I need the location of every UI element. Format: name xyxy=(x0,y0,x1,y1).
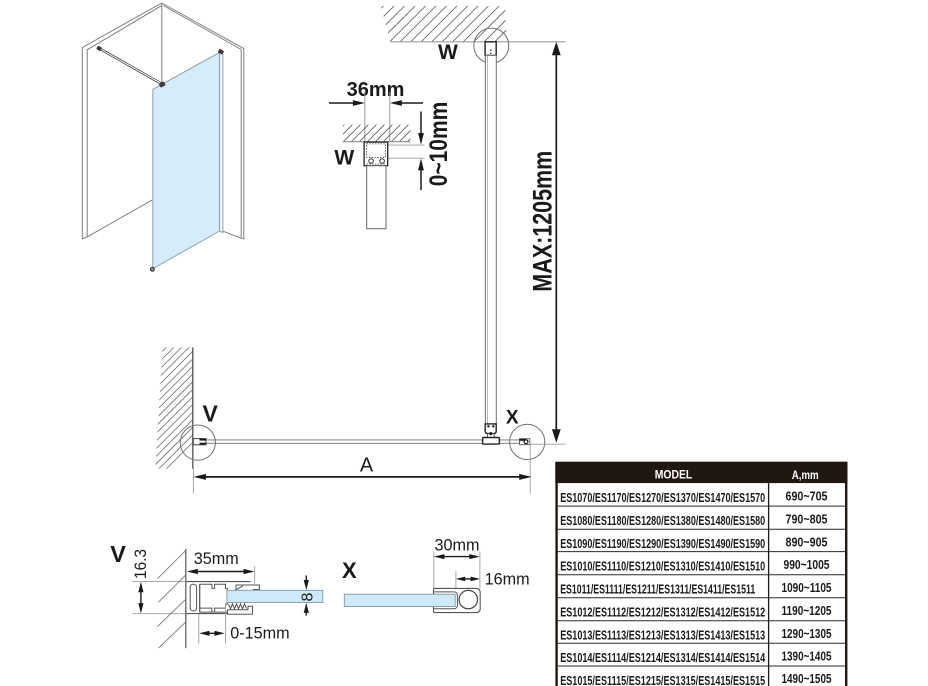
svg-text:W: W xyxy=(334,147,354,170)
svg-text:ES1015/ES1115/ES1215/ES1315/ES: ES1015/ES1115/ES1215/ES1315/ES1415/ES151… xyxy=(560,673,765,686)
svg-text:V: V xyxy=(203,401,219,427)
svg-text:ES1013/ES1113/ES1213/ES1313/ES: ES1013/ES1113/ES1213/ES1313/ES1413/ES151… xyxy=(560,628,765,643)
svg-text:690~705: 690~705 xyxy=(786,488,828,503)
svg-text:ES1090/ES1190/ES1290/ES1390/ES: ES1090/ES1190/ES1290/ES1390/ES1490/ES159… xyxy=(560,536,765,551)
svg-text:35mm: 35mm xyxy=(194,550,239,568)
svg-text:V: V xyxy=(110,541,126,567)
svg-text:1090~1105: 1090~1105 xyxy=(782,580,832,595)
svg-text:ES1070/ES1170/ES1270/ES1370/ES: ES1070/ES1170/ES1270/ES1370/ES1470/ES157… xyxy=(560,490,765,505)
svg-text:MAX:1205mm: MAX:1205mm xyxy=(527,151,557,292)
svg-text:16.3: 16.3 xyxy=(132,549,150,579)
svg-text:0~10mm: 0~10mm xyxy=(425,102,453,187)
svg-text:8: 8 xyxy=(300,592,317,601)
svg-text:30mm: 30mm xyxy=(435,537,480,555)
svg-text:1490~1505: 1490~1505 xyxy=(782,671,832,686)
svg-text:990~1005: 990~1005 xyxy=(784,557,830,572)
svg-text:W: W xyxy=(438,41,458,64)
svg-text:790~805: 790~805 xyxy=(786,511,828,526)
svg-text:36mm: 36mm xyxy=(347,79,405,101)
svg-text:1190~1205: 1190~1205 xyxy=(782,603,832,618)
svg-text:890~905: 890~905 xyxy=(786,534,828,549)
svg-text:ES1014/ES1114/ES1214/ES1314/ES: ES1014/ES1114/ES1214/ES1314/ES1414/ES151… xyxy=(560,650,766,665)
svg-text:A: A xyxy=(360,454,374,476)
svg-text:X: X xyxy=(342,558,357,583)
svg-text:X: X xyxy=(506,407,519,428)
svg-text:1390~1405: 1390~1405 xyxy=(782,648,832,663)
svg-text:16mm: 16mm xyxy=(485,570,530,588)
svg-text:1290~1305: 1290~1305 xyxy=(782,626,832,641)
svg-text:0-15mm: 0-15mm xyxy=(230,625,289,643)
svg-text:MODEL: MODEL xyxy=(655,470,693,482)
svg-text:ES1080/ES1180/ES1280/ES1380/ES: ES1080/ES1180/ES1280/ES1380/ES1480/ES158… xyxy=(560,513,765,528)
svg-text:ES1011/ES1111/ES1211/ES1311/ES: ES1011/ES1111/ES1211/ES1311/ES1411/ES151… xyxy=(560,582,755,597)
svg-text:ES1010/ES1110/ES1210/ES1310/ES: ES1010/ES1110/ES1210/ES1310/ES1410/ES151… xyxy=(560,559,765,574)
svg-text:ES1012/ES1112/ES1212/ES1312/ES: ES1012/ES1112/ES1212/ES1312/ES1412/ES151… xyxy=(560,605,765,620)
svg-text:A,mm: A,mm xyxy=(792,470,819,482)
